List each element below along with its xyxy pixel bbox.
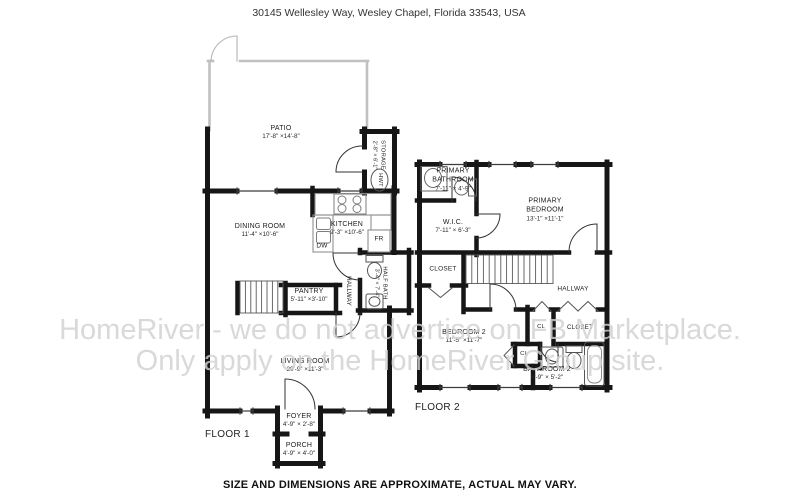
label-hwt: HWT [375, 173, 383, 187]
room-label-closet-lower: CLOSET [567, 324, 593, 332]
address-header: 30145 Wellesley Way, Wesley Chapel, Flor… [252, 7, 525, 19]
room-label-storage: STORAGE 2'-8" × 6'-1" [370, 140, 385, 170]
room-label-foyer: FOYER 4'-9" × 2'-8" [283, 412, 315, 430]
room-label-cl2: CL [520, 351, 528, 359]
floor1-plan [205, 36, 412, 466]
room-label-halfbath: HALF BATH 3'-4" × 7'-4" [372, 266, 387, 299]
patio-walls [208, 61, 368, 130]
room-label-patio: PATIO 17'-8" ×14'-8" [262, 124, 300, 142]
storage-door-icon [336, 146, 362, 172]
room-label-cl1: CL [537, 324, 545, 332]
floor1-title: FLOOR 1 [205, 429, 250, 440]
room-label-hallway1: HALLWAY [344, 276, 352, 306]
stove-icon [334, 194, 366, 214]
room-label-primary-bedroom: PRIMARY BEDROOM 13'-1" ×11'-1" [520, 196, 570, 223]
room-label-hallway2: HALLWAY [557, 286, 588, 295]
floor2-title: FLOOR 2 [415, 402, 460, 413]
label-fridge: FR [374, 236, 383, 245]
room-label-bedroom2: BEDROOM 2 11'-5" ×11'-7" [442, 328, 486, 346]
floorplan-page: 30145 Wellesley Way, Wesley Chapel, Flor… [0, 0, 800, 499]
floorplan-drawing [0, 0, 800, 499]
floor2-stairs [466, 255, 553, 284]
room-label-dining: DINING ROOM 11'-4" ×10'-6" [235, 222, 285, 240]
room-label-bathroom2: BATHROOM 2 9'-9" × 5'-2" [523, 365, 571, 383]
disclaimer-footer: SIZE AND DIMENSIONS ARE APPROXIMATE, ACT… [223, 479, 577, 491]
room-label-living: LIVING ROOM 20'-9" ×11'-3" [281, 357, 330, 375]
floor1-stairs [240, 281, 283, 313]
room-label-wic: W.I.C. 7'-11" × 6'-3" [435, 218, 470, 236]
floor2-plan [417, 162, 610, 391]
patio-gate-door-icon [211, 36, 237, 61]
room-label-porch: PORCH 4'-9" × 4'-0" [283, 441, 315, 459]
room-label-pantry: PANTRY 5'-11" ×3'-10" [290, 287, 327, 305]
room-label-kitchen: KITCHEN 9'-3" ×10'-6" [330, 220, 364, 238]
kitchen-sink-icon [317, 218, 331, 243]
room-label-closet-upper: CLOSET [429, 266, 456, 275]
floor2-interior-walls [417, 162, 610, 388]
label-dishwasher: DW [316, 243, 327, 252]
room-label-primary-bathroom: PRIMARY BATHROOM 7'-11" × 4'-9" [428, 166, 478, 193]
